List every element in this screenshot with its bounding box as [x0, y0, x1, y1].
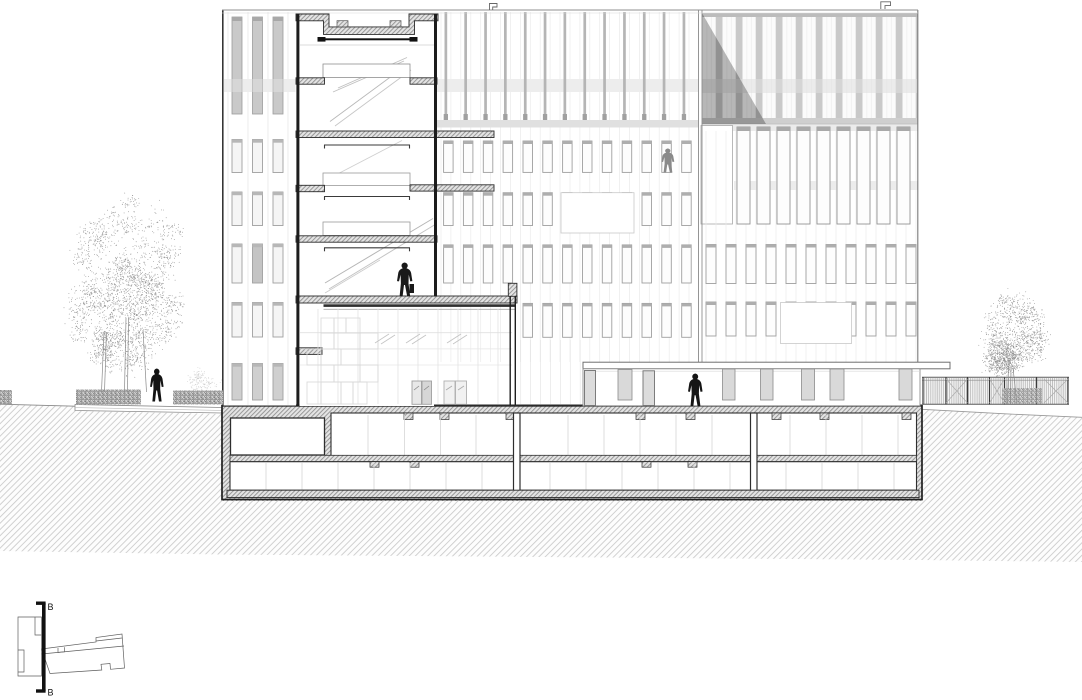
svg-text:B: B — [48, 602, 54, 612]
svg-text:B: B — [48, 688, 54, 698]
